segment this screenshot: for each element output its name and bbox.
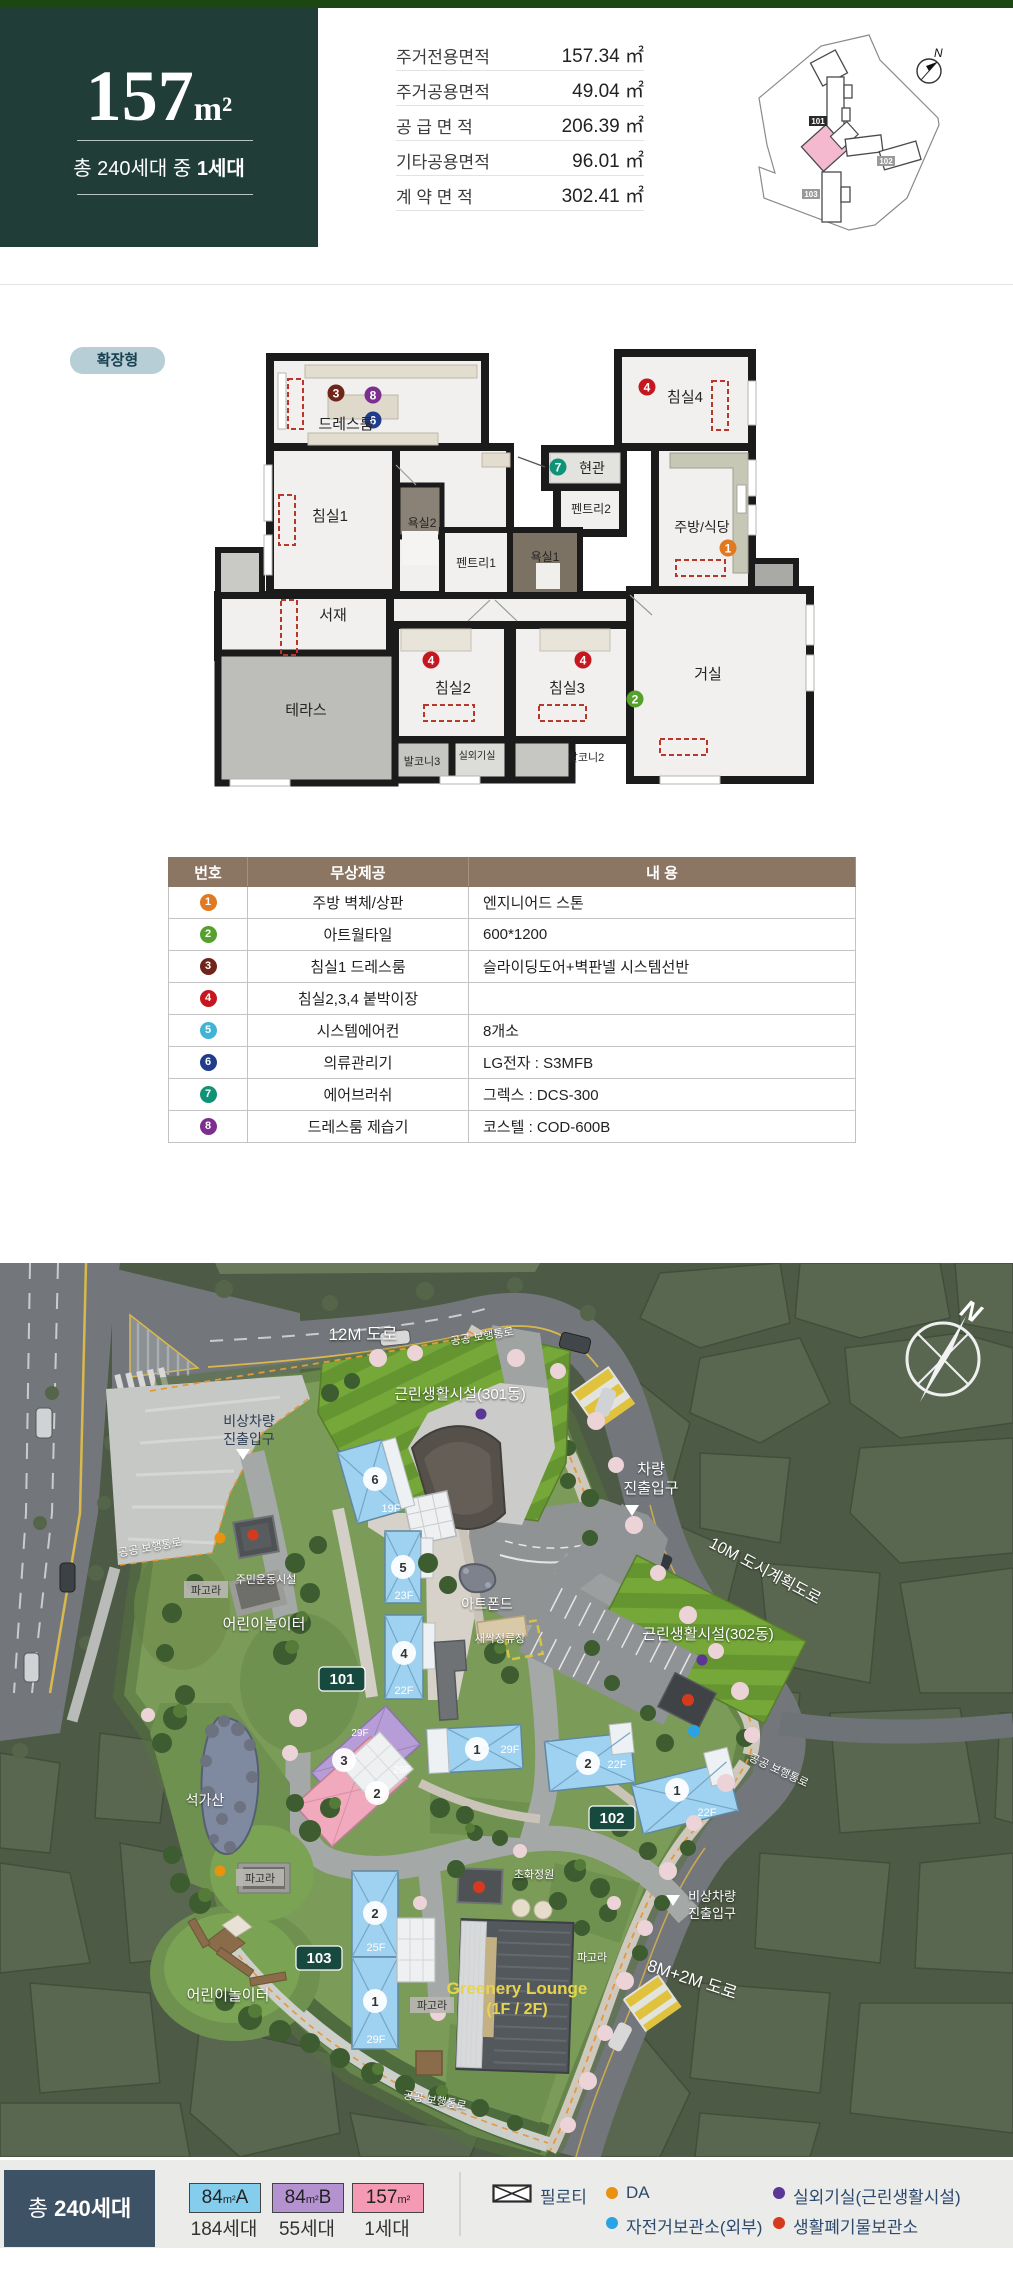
- svg-text:(1F / 2F): (1F / 2F): [486, 2001, 547, 2018]
- svg-text:2: 2: [632, 693, 639, 707]
- svg-text:5: 5: [399, 1560, 406, 1575]
- svg-text:실외기실: 실외기실: [459, 750, 496, 762]
- svg-text:진출입구: 진출입구: [688, 1906, 736, 1921]
- svg-text:침실2: 침실2: [435, 680, 471, 697]
- svg-text:2: 2: [373, 1786, 380, 1801]
- svg-text:1: 1: [473, 1742, 480, 1757]
- svg-text:7: 7: [555, 461, 562, 475]
- svg-text:파고라: 파고라: [191, 1584, 221, 1597]
- svg-text:12M 도로: 12M 도로: [328, 1325, 397, 1344]
- svg-text:새싹정류장: 새싹정류장: [475, 1632, 526, 1645]
- svg-text:4: 4: [644, 381, 651, 395]
- svg-text:현관: 현관: [579, 460, 605, 476]
- svg-text:발코니3: 발코니3: [404, 755, 440, 768]
- svg-text:29F: 29F: [501, 1744, 520, 1756]
- svg-text:29F: 29F: [367, 2034, 386, 2046]
- svg-text:22F: 22F: [698, 1807, 717, 1819]
- svg-text:102: 102: [599, 1810, 624, 1827]
- svg-text:N: N: [934, 46, 943, 60]
- svg-text:어린이놀이터: 어린이놀이터: [223, 1616, 306, 1633]
- svg-text:2: 2: [584, 1756, 591, 1771]
- svg-text:주방/식당: 주방/식당: [674, 519, 730, 535]
- svg-text:1: 1: [371, 1994, 378, 2009]
- svg-text:Greenery Lounge: Greenery Lounge: [447, 1979, 588, 1998]
- svg-text:1: 1: [725, 542, 732, 556]
- svg-text:101: 101: [811, 117, 825, 126]
- svg-text:8: 8: [370, 389, 377, 403]
- svg-text:3: 3: [333, 387, 340, 401]
- svg-text:석가산: 석가산: [186, 1792, 225, 1808]
- svg-text:파고라: 파고라: [577, 1951, 607, 1964]
- svg-text:아트폰드: 아트폰드: [461, 1596, 513, 1612]
- svg-text:드레스룸: 드레스룸: [318, 416, 373, 433]
- svg-text:29F: 29F: [351, 1728, 368, 1739]
- svg-text:초화정원: 초화정원: [514, 1868, 554, 1881]
- svg-text:근린생활시설(301동): 근린생활시설(301동): [394, 1386, 526, 1403]
- svg-text:침실3: 침실3: [549, 680, 585, 697]
- svg-text:파고라: 파고라: [417, 1999, 447, 2012]
- svg-text:차량: 차량: [637, 1461, 665, 1478]
- svg-text:진출입구: 진출입구: [223, 1431, 275, 1447]
- svg-text:근린생활시설(302동): 근린생활시설(302동): [642, 1626, 774, 1643]
- svg-text:욕실1: 욕실1: [531, 550, 560, 564]
- svg-text:103: 103: [804, 190, 818, 199]
- svg-text:2: 2: [371, 1906, 378, 1921]
- svg-text:발코니2: 발코니2: [568, 751, 604, 764]
- svg-text:102: 102: [879, 157, 893, 166]
- svg-text:29F: 29F: [393, 1765, 410, 1776]
- svg-text:서재: 서재: [319, 607, 347, 624]
- svg-text:4: 4: [400, 1646, 408, 1661]
- svg-text:3: 3: [340, 1753, 347, 1768]
- svg-text:침실1: 침실1: [312, 508, 348, 525]
- svg-text:101: 101: [329, 1671, 354, 1688]
- svg-text:욕실2: 욕실2: [408, 516, 437, 530]
- svg-text:어린이놀이터: 어린이놀이터: [187, 1987, 270, 2004]
- svg-text:펜트리1: 펜트리1: [456, 556, 496, 570]
- svg-text:진출입구: 진출입구: [623, 1480, 678, 1497]
- svg-text:주민운동시설: 주민운동시설: [236, 1573, 297, 1586]
- svg-text:거실: 거실: [694, 666, 722, 683]
- svg-text:비상차량: 비상차량: [223, 1413, 275, 1429]
- svg-text:4: 4: [428, 654, 435, 668]
- svg-text:19F: 19F: [382, 1503, 401, 1515]
- svg-text:6: 6: [371, 1472, 378, 1487]
- svg-text:23F: 23F: [395, 1590, 414, 1602]
- svg-text:4: 4: [580, 654, 587, 668]
- svg-text:테라스: 테라스: [285, 702, 327, 719]
- svg-text:침실4: 침실4: [667, 389, 703, 406]
- svg-text:103: 103: [306, 1950, 331, 1967]
- svg-text:비상차량: 비상차량: [688, 1889, 736, 1904]
- svg-text:파고라: 파고라: [245, 1872, 275, 1885]
- svg-text:22F: 22F: [608, 1759, 627, 1771]
- svg-text:25F: 25F: [367, 1942, 386, 1954]
- svg-text:펜트리2: 펜트리2: [571, 502, 611, 516]
- svg-text:1: 1: [673, 1783, 680, 1798]
- svg-text:22F: 22F: [395, 1685, 414, 1697]
